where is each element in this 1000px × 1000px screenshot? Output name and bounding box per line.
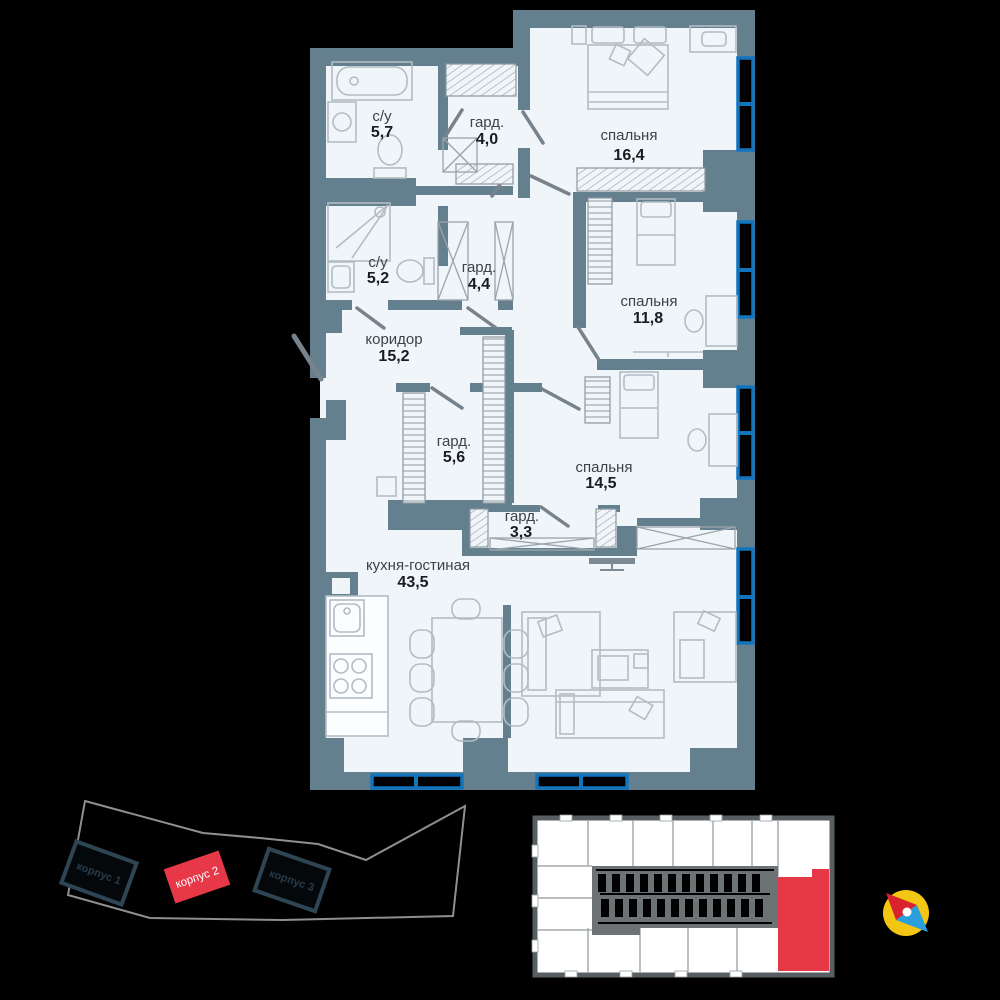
room-name: спальня: [601, 127, 658, 144]
room-area: 4,4: [468, 276, 490, 293]
room-name: с/у: [368, 254, 388, 271]
kitchen-counter-icon: [326, 596, 388, 736]
room-area: 16,4: [613, 147, 644, 164]
room-name: гард.: [470, 114, 504, 131]
room-area: 5,6: [443, 449, 465, 466]
room-area: 5,7: [371, 124, 393, 141]
floor-key-plan: [532, 815, 832, 977]
building-korpus-2-highlighted[interactable]: корпус 2: [164, 851, 231, 904]
room-area: 43,5: [397, 574, 428, 591]
apartment-floor-plan: с/у 5,7 гард. 4,0 спальня 16,4 с/у 5,2 г…: [294, 10, 755, 790]
room-name: спальня: [576, 459, 633, 476]
room-name: гард.: [462, 259, 496, 276]
compass: [883, 890, 929, 936]
compass-pivot: [903, 908, 912, 917]
room-name: коридор: [365, 331, 422, 348]
room-area: 15,2: [378, 348, 409, 365]
scene: с/у 5,7 гард. 4,0 спальня 16,4 с/у 5,2 г…: [0, 0, 1000, 1000]
highlighted-unit[interactable]: [778, 869, 829, 971]
building-korpus-3[interactable]: корпус 3: [255, 849, 330, 911]
kitchen-niche: [332, 578, 350, 594]
room-area: 11,8: [633, 310, 663, 327]
room-name: с/у: [372, 108, 392, 125]
core-block: [592, 866, 778, 935]
room-area: 4,0: [476, 131, 498, 148]
room-name: спальня: [621, 293, 678, 310]
room-area: 14,5: [585, 475, 616, 492]
room-name: гард.: [437, 433, 471, 450]
site-plan: корпус 1 корпус 2 корпус 3: [61, 801, 465, 920]
room-area: 3,3: [510, 524, 532, 541]
room-name: кухня-гостиная: [366, 557, 470, 574]
room-area: 5,2: [367, 270, 389, 287]
building-korpus-1[interactable]: корпус 1: [61, 841, 136, 904]
room-name: гард.: [505, 508, 539, 525]
page: с/у 5,7 гард. 4,0 спальня 16,4 с/у 5,2 г…: [0, 0, 1000, 1000]
